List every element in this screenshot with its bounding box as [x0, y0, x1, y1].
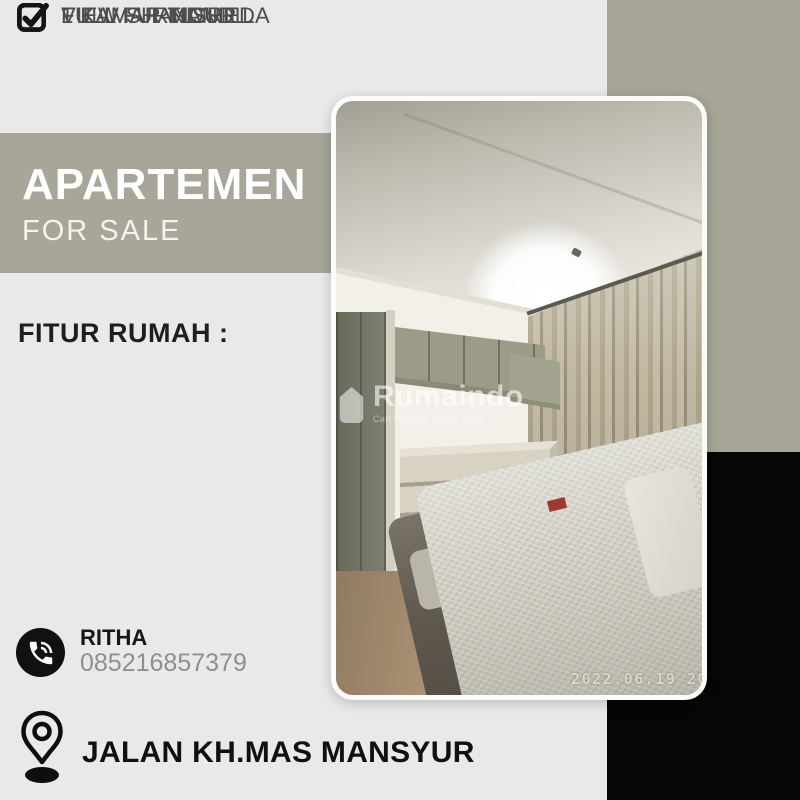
contact-name: RITHA: [80, 625, 247, 650]
feature-row-view: VIEW SHANGRILLA: [16, 0, 270, 31]
contact-block: RITHA 085216857379: [80, 625, 247, 677]
photo-wardrobe: [336, 312, 386, 578]
contact-phone-number: 085216857379: [80, 650, 247, 677]
phone-badge: [16, 628, 65, 677]
bedroom-scene: Rumaindo Cari Properti Tanpa Ribet 2022.…: [336, 101, 702, 695]
watermark-brand-text: Rumaindo: [373, 382, 524, 412]
feature-label: VIEW SHANGRILLA: [61, 3, 270, 29]
features-heading: FITUR RUMAH :: [18, 318, 228, 349]
checkbox-checked-icon: [16, 0, 49, 32]
rumaindo-logo-icon: [338, 384, 365, 426]
watermark-tagline-text: Cari Properti Tanpa Ribet: [373, 414, 524, 424]
property-photo: Rumaindo Cari Properti Tanpa Ribet 2022.…: [331, 96, 707, 700]
phone-icon: [26, 638, 56, 668]
photo-timestamp: 2022.06.19 20: [571, 670, 702, 688]
location-pin-icon: [16, 709, 68, 785]
address-text: JALAN KH.MAS MANSYUR: [82, 736, 475, 770]
watermark: Rumaindo Cari Properti Tanpa Ribet: [338, 382, 524, 426]
apartment-sale-flyer: APARTEMEN FOR SALE FITUR RUMAH : FULL FU…: [0, 0, 800, 800]
